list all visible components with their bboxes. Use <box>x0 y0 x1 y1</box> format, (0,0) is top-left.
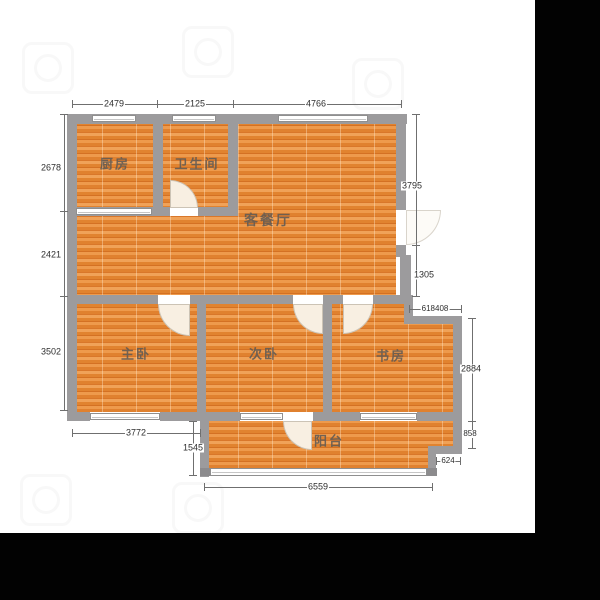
wall-corner <box>427 468 437 476</box>
wall-segment <box>160 412 240 421</box>
dimension-tick <box>436 457 437 465</box>
dimension-tick <box>468 448 476 449</box>
dimension-label: 2678 <box>40 164 62 173</box>
dimension-tick <box>412 296 420 297</box>
second-bedroom-door-opening <box>293 295 323 304</box>
dimension-label: 624 <box>440 457 455 465</box>
letterbox-bottom <box>0 533 600 600</box>
room-label-kitchen: 厨房 <box>100 154 130 173</box>
wall-segment <box>163 207 170 216</box>
dimension-label: 6559 <box>307 483 329 492</box>
wall-segment <box>67 295 158 304</box>
dimension-tick <box>401 100 402 108</box>
balcony-window <box>210 468 427 476</box>
wall-segment <box>198 207 238 216</box>
living-floor <box>77 216 238 295</box>
living-entry-door-arc <box>406 210 441 245</box>
dimension-label: 2421 <box>40 251 62 260</box>
wall-segment <box>313 412 360 421</box>
study-floor <box>404 324 453 412</box>
living-entry-door-opening <box>396 210 406 245</box>
bathroom-top-window <box>172 115 216 122</box>
dimension-label: 3502 <box>40 348 62 357</box>
dimension-tick <box>409 305 410 313</box>
watermark-camera-icon <box>20 474 72 526</box>
master-bedroom-door-opening <box>158 295 190 304</box>
watermark-camera-icon <box>172 482 224 534</box>
dimension-tick <box>72 100 73 108</box>
wall-corner <box>200 468 210 476</box>
dimension-tick <box>60 296 68 297</box>
dimension-tick <box>468 318 476 319</box>
master-bedroom-window <box>90 413 160 420</box>
dimension-tick <box>200 429 201 437</box>
wall-segment <box>396 114 406 210</box>
dimension-label: 3772 <box>125 429 147 438</box>
kitchen-top-window <box>92 115 136 122</box>
wall-segment <box>197 295 206 420</box>
dimension-tick <box>60 410 68 411</box>
wall-segment <box>228 114 238 215</box>
dimension-line <box>64 114 65 410</box>
floorplan-image: 2479 2125 4766 2678 2421 3502 3795 1305 … <box>0 0 600 600</box>
watermark-camera-icon <box>352 58 404 110</box>
balcony-door-opening <box>283 412 312 421</box>
living-top-window <box>278 115 368 122</box>
dimension-label: 858 <box>462 430 477 438</box>
wall-segment <box>323 295 332 420</box>
wall-segment <box>453 316 462 449</box>
dimension-tick <box>60 114 68 115</box>
dimension-label: 618408 <box>421 305 450 313</box>
study-door-opening <box>343 295 373 304</box>
dimension-label: 1305 <box>413 271 435 280</box>
room-label-study: 书房 <box>376 346 406 365</box>
dimension-tick <box>189 475 197 476</box>
dimension-label: 2479 <box>103 100 125 109</box>
room-label-master-bedroom: 主卧 <box>121 344 151 363</box>
dimension-label: 2125 <box>184 100 206 109</box>
dimension-tick <box>60 211 68 212</box>
dimension-tick <box>468 421 476 422</box>
dimension-tick <box>233 100 234 108</box>
second-bedroom-window <box>240 413 283 420</box>
dimension-tick <box>412 114 420 115</box>
room-label-bathroom: 卫生间 <box>174 154 219 173</box>
bathroom-door-opening <box>170 207 198 216</box>
dimension-tick <box>412 245 420 246</box>
wall-segment <box>417 412 462 421</box>
letterbox-right <box>535 0 600 600</box>
dimension-tick <box>189 421 197 422</box>
wall-segment <box>153 114 163 215</box>
dimension-tick <box>460 457 461 465</box>
dimension-tick <box>204 483 205 491</box>
study-window <box>360 413 417 420</box>
wall-segment <box>67 412 90 421</box>
dimension-tick <box>461 305 462 313</box>
watermark-camera-icon <box>182 26 234 78</box>
wall-segment <box>400 255 411 300</box>
room-label-second-bedroom: 次卧 <box>249 344 279 363</box>
room-label-balcony: 阳台 <box>314 431 344 450</box>
dimension-tick <box>72 429 73 437</box>
room-label-living-dining: 客餐厅 <box>244 210 292 230</box>
wall-segment <box>67 114 77 420</box>
dimension-label: 1545 <box>182 444 204 453</box>
dimension-label: 3795 <box>401 182 423 191</box>
dimension-tick <box>157 100 158 108</box>
dimension-label: 4766 <box>305 100 327 109</box>
dimension-label: 2884 <box>460 365 482 374</box>
dimension-tick <box>432 483 433 491</box>
kitchen-bottom-window <box>76 208 152 215</box>
watermark-camera-icon <box>22 42 74 94</box>
